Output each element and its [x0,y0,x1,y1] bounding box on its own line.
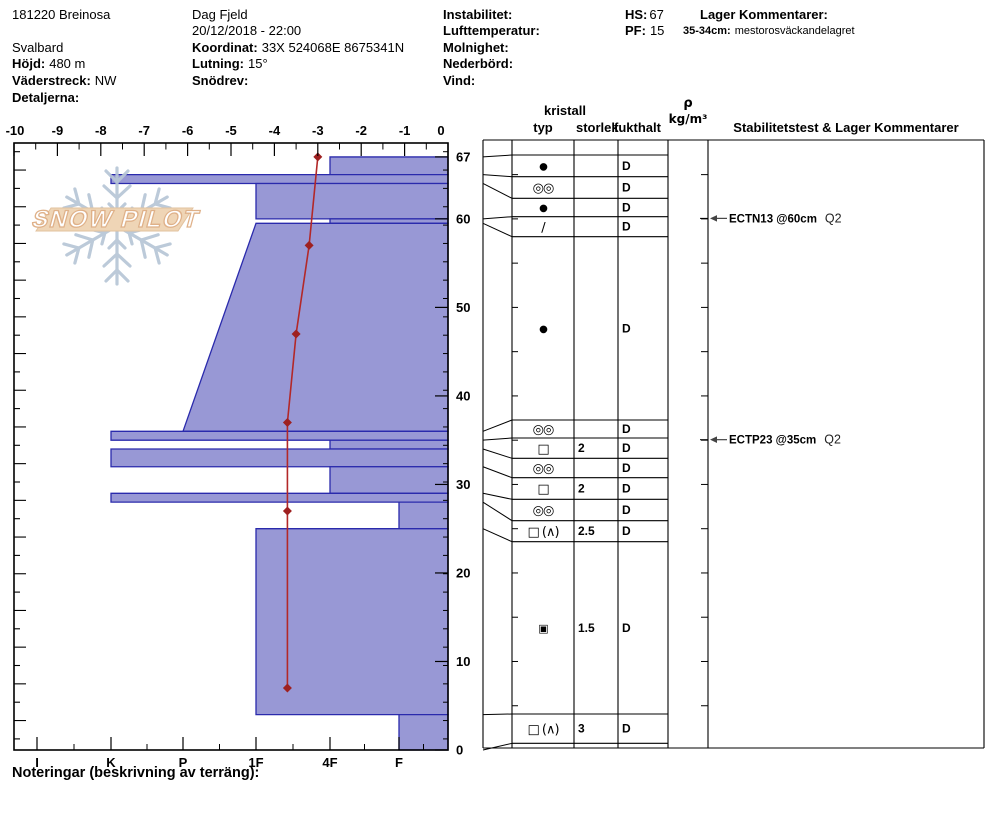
crystal-symbol-rounded-grains: ● [539,203,548,214]
layer-bar-10 [399,502,448,529]
snow-profile-chart: SNOW PILOT-10-9-8-7-6-5-4-3-2-1067605040… [0,0,994,840]
crystal-symbol-mixed-forms: ▣ [538,622,548,635]
layer-bar-9 [111,493,448,502]
leader-line-13 [483,743,512,750]
svg-text:-7: -7 [138,123,150,138]
wetness: D [622,220,631,234]
crystal-symbol-faceted-crystals: □ [537,442,548,457]
crystal-symbol-decomposing-fragments: ∕ [541,220,546,235]
crystal-symbol-rounded-grains: ● [539,324,548,335]
layer-bar-5 [111,431,448,440]
layer-bar-0 [330,157,448,175]
svg-text:4F: 4F [322,755,337,770]
test-arrow-icon [710,436,717,443]
svg-text:30: 30 [456,477,470,492]
wetness: D [622,461,631,475]
crystal-symbol-rounded-grains: ● [539,161,548,172]
wetness: D [622,422,631,436]
layer-bar-1 [111,175,448,184]
svg-text:67: 67 [456,149,470,164]
svg-text:F: F [395,755,403,770]
wetness: D [622,321,631,335]
grain-size: 2.5 [578,524,595,538]
crystal-symbol-melt-freeze-crust-grains: ◎◎ [533,181,554,196]
svg-text:-2: -2 [355,123,367,138]
svg-text:-1: -1 [399,123,411,138]
leader-line-2 [483,183,512,198]
layer-bar-6 [330,440,448,449]
leader-line-12 [483,714,512,715]
crystal-symbol-faceted-crystals: □ [537,482,548,497]
wetness: D [622,201,631,215]
crystal-symbol-facets-depth-hoar: □ (∧) [527,525,558,540]
leader-line-4 [483,223,512,236]
layer-bar-4 [183,223,448,431]
wetness: D [622,441,631,455]
snowpilot-logo: SNOW PILOT [29,168,203,284]
leader-line-8 [483,467,512,478]
svg-text:20: 20 [456,565,470,580]
leader-line-7 [483,449,512,458]
svg-text:-3: -3 [312,123,324,138]
leader-line-9 [483,493,512,499]
wetness: D [622,159,631,173]
leader-line-0 [483,155,512,157]
leader-line-10 [483,502,512,521]
svg-text:0: 0 [456,743,463,758]
notes-label: Noteringar (beskrivning av terräng): [12,765,259,781]
layer-bar-3 [330,219,448,223]
svg-text:-9: -9 [52,123,64,138]
leader-line-3 [483,217,512,219]
leader-line-5 [483,420,512,431]
svg-text:-10: -10 [6,123,25,138]
svg-text:50: 50 [456,300,470,315]
layer-bar-8 [330,467,448,494]
svg-text:-6: -6 [182,123,194,138]
wetness: D [622,524,631,538]
wetness: D [622,482,631,496]
grain-size: 2 [578,441,585,455]
crystal-rows: ●D◎◎D●D∕D●D◎◎D□2D◎◎D□2D◎◎D□ (∧)2.5D▣1.5D… [527,159,631,737]
temperature-point-4 [283,506,292,515]
svg-text:60: 60 [456,211,470,226]
test-result-1: ECTP23 @35cmQ2 [729,433,841,447]
layer-bar-7 [111,449,448,467]
leader-line-1 [483,175,512,177]
svg-text:10: 10 [456,654,470,669]
svg-text:0: 0 [437,123,444,138]
leader-line-11 [483,529,512,542]
grain-size: 1.5 [578,621,595,635]
crystal-symbol-melt-freeze-crust-grains: ◎◎ [533,423,554,438]
svg-text:-8: -8 [95,123,107,138]
crystal-symbol-melt-freeze-crust-grains: ◎◎ [533,504,554,519]
grain-size: 3 [578,722,585,736]
logo-text: SNOW PILOT [29,206,203,233]
test-arrow-icon [710,215,717,222]
wetness: D [622,181,631,195]
crystal-symbol-melt-freeze-crust-grains: ◎◎ [533,462,554,477]
svg-text:-4: -4 [269,123,281,138]
wetness: D [622,621,631,635]
stability-tests: ECTN13 @60cmQ2ECTP23 @35cmQ2 [700,211,842,446]
layer-bar-2 [256,183,448,218]
grain-size: 2 [578,482,585,496]
svg-text:40: 40 [456,388,470,403]
snowpit-profile-page: { "header": { "pit_id": "181220 Breinosa… [0,0,994,840]
crystal-symbol-facets-depth-hoar: □ (∧) [527,722,558,737]
wetness: D [622,722,631,736]
leader-line-6 [483,438,512,440]
svg-text:-5: -5 [225,123,237,138]
wetness: D [622,503,631,517]
test-result-0: ECTN13 @60cmQ2 [729,211,842,225]
